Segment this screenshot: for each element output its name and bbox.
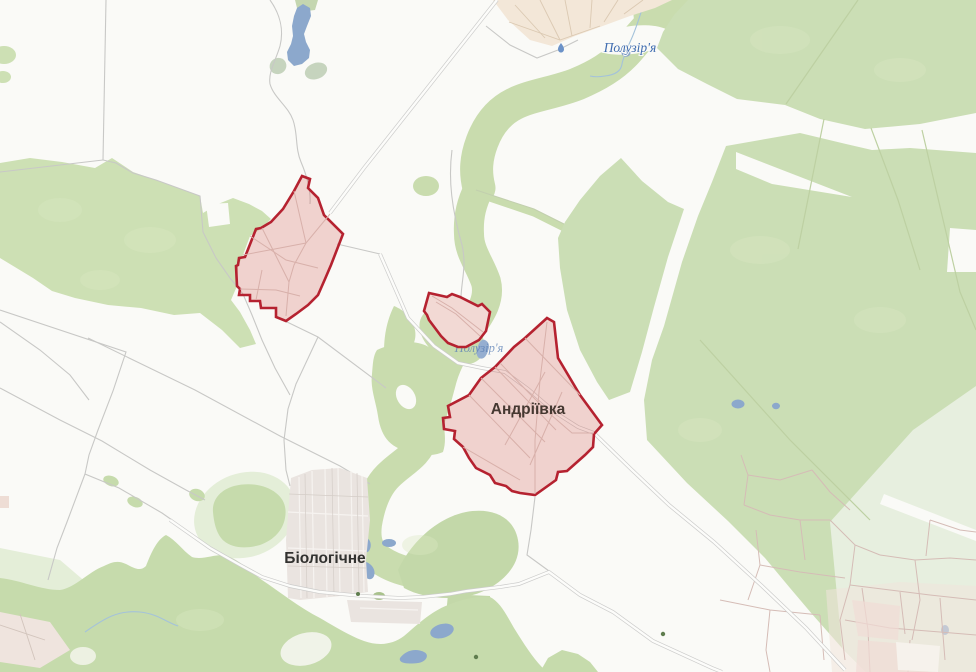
svg-text:Біологічне: Біологічне xyxy=(284,550,366,567)
svg-text:Полузір'я: Полузір'я xyxy=(603,40,657,55)
svg-text:Андріївка: Андріївка xyxy=(491,401,566,418)
